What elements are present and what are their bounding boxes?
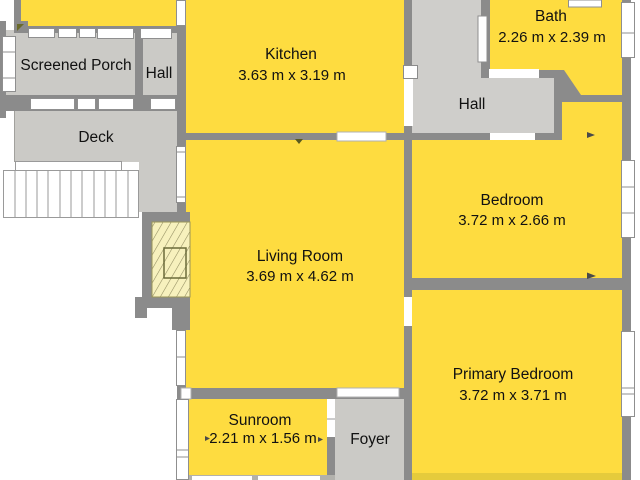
- svg-text:Bath: Bath: [535, 8, 567, 25]
- svg-text:Deck: Deck: [78, 129, 114, 146]
- svg-text:2.26 m x 2.39 m: 2.26 m x 2.39 m: [498, 29, 606, 46]
- svg-text:Bedroom: Bedroom: [481, 192, 544, 209]
- svg-text:3.72 m x 3.71 m: 3.72 m x 3.71 m: [459, 387, 567, 404]
- svg-text:Foyer: Foyer: [350, 431, 390, 448]
- svg-text:Hall: Hall: [146, 65, 173, 82]
- svg-text:Hall: Hall: [459, 96, 486, 113]
- svg-text:3.69 m x 4.62 m: 3.69 m x 4.62 m: [246, 268, 354, 285]
- svg-text:3.63 m x 3.19 m: 3.63 m x 3.19 m: [238, 67, 346, 84]
- svg-text:3.72 m x 2.66 m: 3.72 m x 2.66 m: [458, 212, 566, 229]
- svg-text:2.21 m x 1.56 m: 2.21 m x 1.56 m: [209, 430, 317, 447]
- svg-text:Primary Bedroom: Primary Bedroom: [453, 366, 574, 383]
- svg-text:Living Room: Living Room: [257, 248, 343, 265]
- svg-text:Sunroom: Sunroom: [229, 412, 292, 429]
- svg-text:Kitchen: Kitchen: [265, 46, 317, 63]
- svg-text:Screened Porch: Screened Porch: [20, 57, 131, 74]
